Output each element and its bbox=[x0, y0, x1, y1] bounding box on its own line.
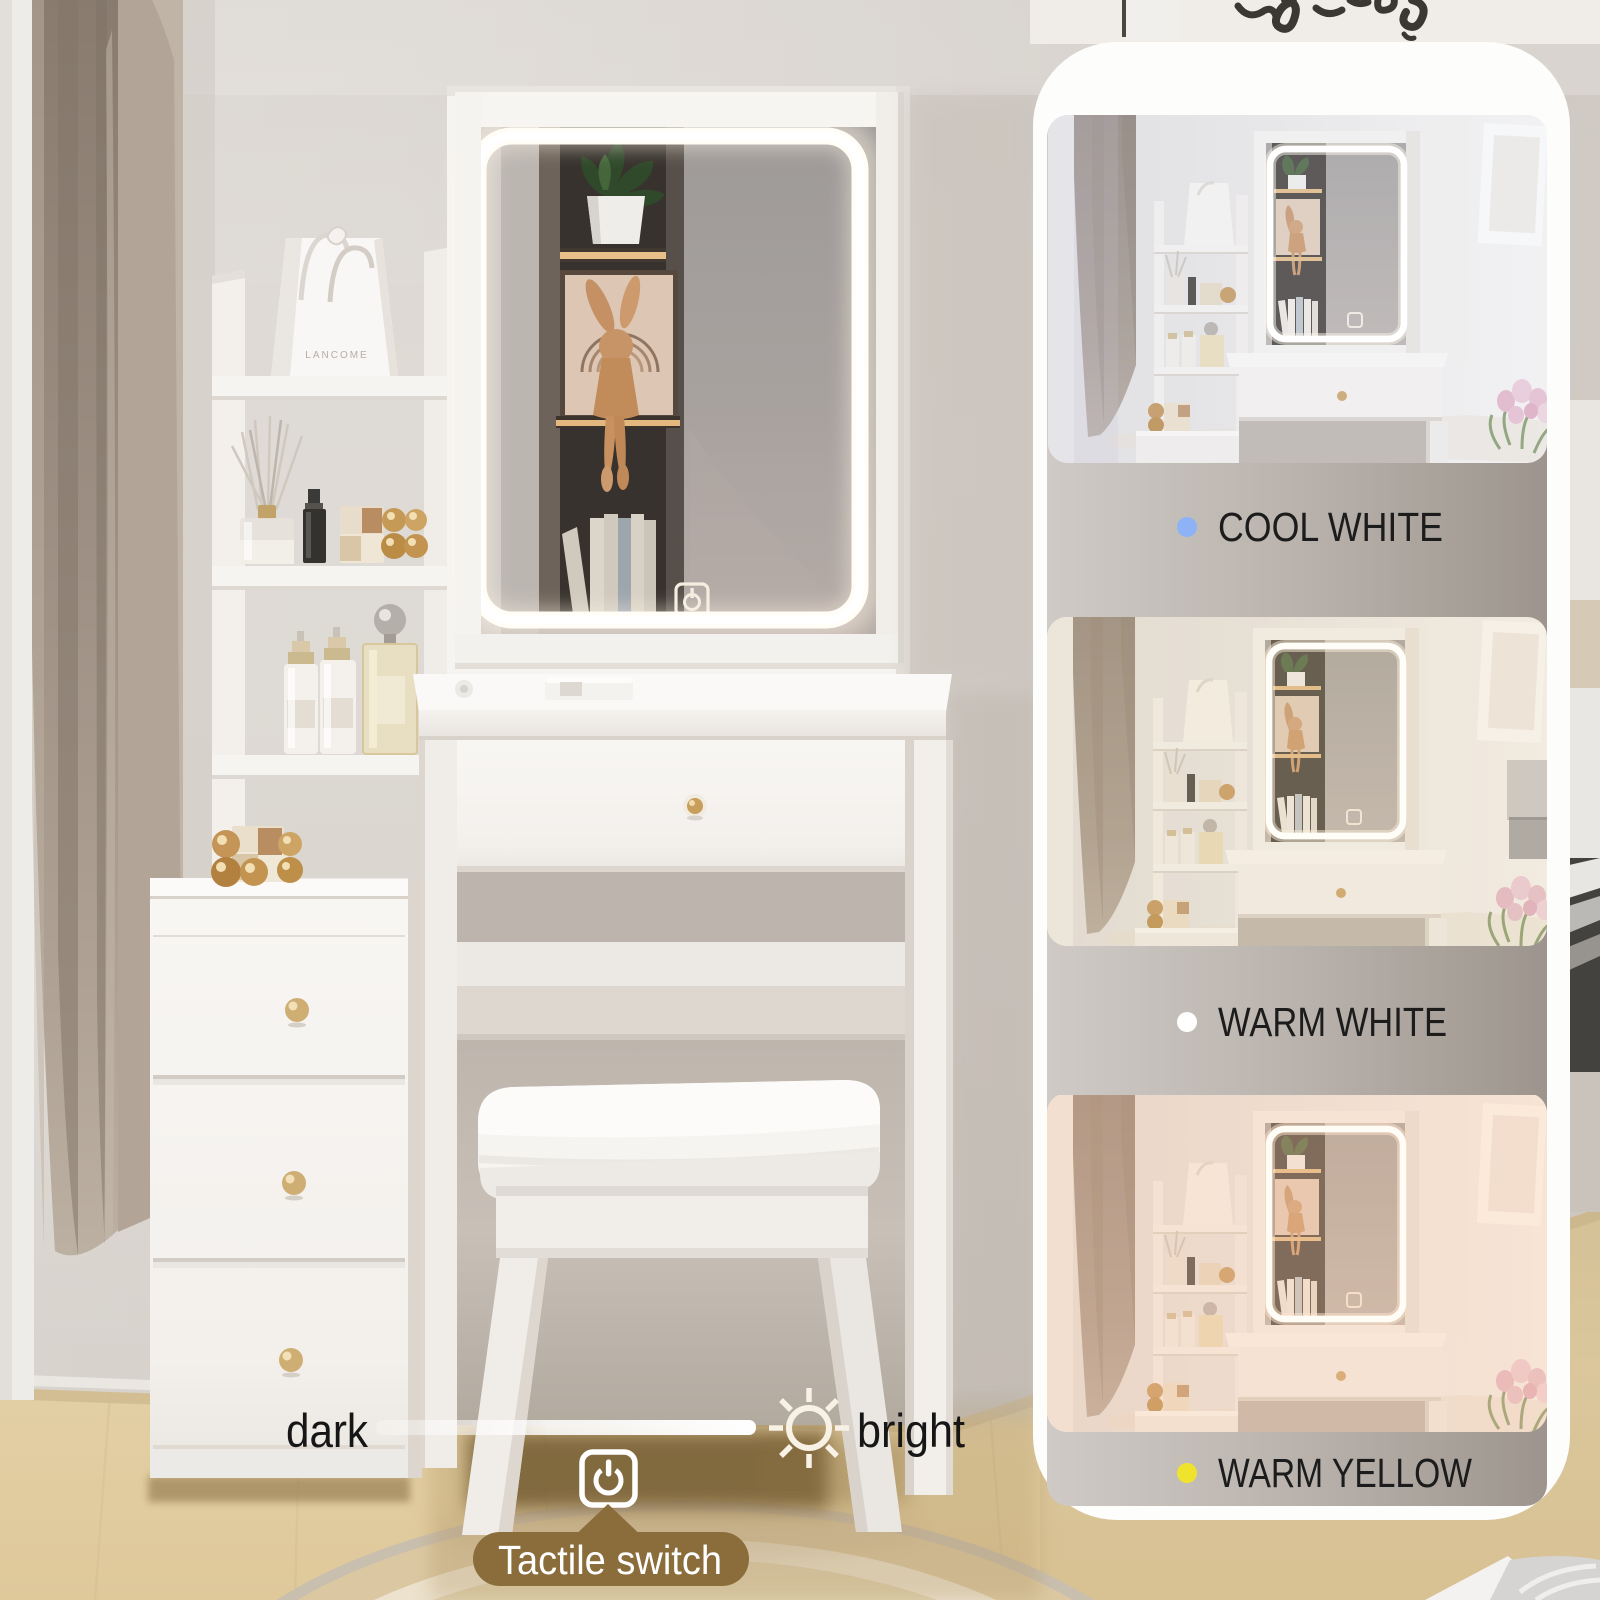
svg-text:dark: dark bbox=[286, 1404, 368, 1457]
svg-text:COOL WHITE: COOL WHITE bbox=[1218, 504, 1443, 550]
svg-text:WARM YELLOW: WARM YELLOW bbox=[1218, 1450, 1472, 1496]
svg-text:bright: bright bbox=[857, 1404, 965, 1457]
svg-text:LANCOME: LANCOME bbox=[305, 350, 368, 361]
svg-text:WARM WHITE: WARM WHITE bbox=[1218, 999, 1447, 1045]
svg-text:Tactile switch: Tactile switch bbox=[498, 1537, 722, 1583]
